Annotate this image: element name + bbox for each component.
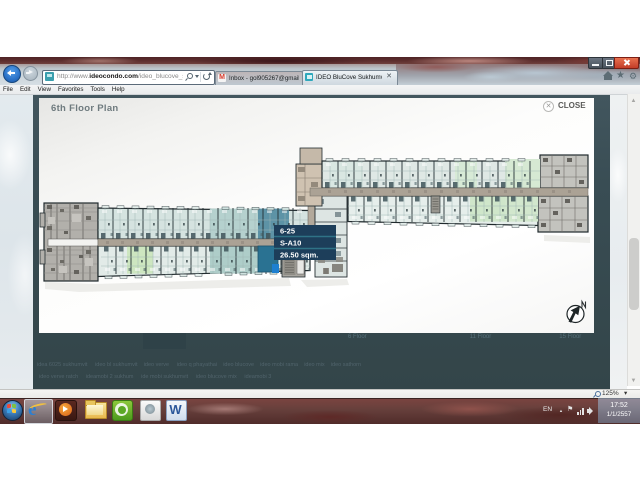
svg-text:6-25: 6-25 bbox=[280, 227, 295, 236]
svg-text:26.50 sqm.: 26.50 sqm. bbox=[280, 251, 318, 260]
svg-text:S-A10: S-A10 bbox=[280, 239, 301, 248]
